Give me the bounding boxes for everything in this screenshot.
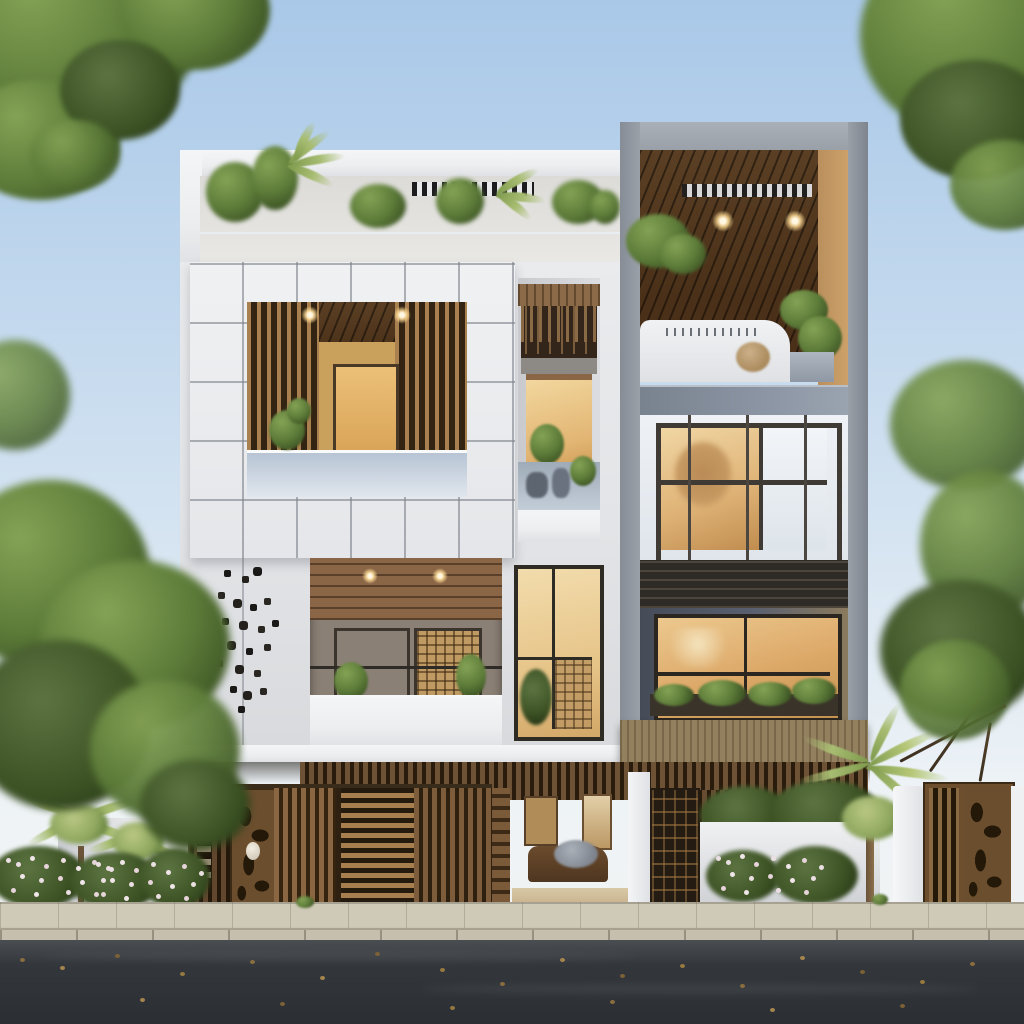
trailing-plants (654, 684, 694, 706)
flower-bush (140, 848, 210, 908)
sidewalk-edge (0, 902, 1024, 904)
gate-slat-leaf (929, 788, 959, 902)
parapet-plant (456, 654, 486, 698)
roof-shrub (436, 178, 484, 224)
window-rail (661, 480, 827, 485)
tower-terrace (640, 300, 848, 385)
ladder-detail-jamb (492, 788, 510, 906)
sidewalk-weed (872, 894, 888, 905)
sidewalk (0, 902, 1024, 928)
gate-medallion (246, 842, 260, 860)
tiled-feature-box (190, 262, 515, 558)
gate-carved-leaf (963, 786, 1009, 906)
flowers (96, 862, 101, 867)
window-plant (520, 669, 552, 725)
mullion (688, 415, 691, 560)
frame-left (620, 122, 640, 762)
floor-band (640, 385, 848, 417)
road (0, 940, 1024, 1024)
middle-bay-lower-window (514, 565, 604, 741)
mullion (804, 415, 807, 560)
lower-floor-wall (640, 608, 848, 720)
gate-vertical-slats (274, 788, 336, 908)
balcony-tree (287, 398, 311, 424)
inner-railing-slats (682, 184, 812, 197)
veranda-opening (310, 558, 502, 745)
flowers (6, 858, 11, 863)
recessed-light (784, 210, 806, 232)
curtain-wall (640, 415, 848, 560)
middle-bay-upper (518, 278, 600, 542)
sidewalk-weed (296, 896, 314, 908)
downlight (362, 568, 378, 584)
furniture-drape (554, 840, 598, 868)
roof-terrace (200, 176, 620, 262)
rendered-scene (0, 0, 1024, 1024)
wood-fascia-band (518, 284, 600, 306)
dark-lattice-gate (650, 788, 700, 906)
balcony-parapet (518, 510, 600, 542)
right-tower-block (620, 122, 868, 762)
white-pillar (628, 772, 650, 908)
entrance-lobby (512, 788, 630, 906)
butterfly-wall-art (224, 570, 231, 577)
recessed-light (712, 210, 734, 232)
tree-reflection (675, 442, 731, 506)
spotlight (301, 306, 319, 324)
lower-fascia (180, 745, 620, 762)
trailing-plants (792, 678, 836, 704)
wood-slat-screen-right (395, 302, 467, 452)
road-sheen (420, 984, 980, 994)
monstera-plant (660, 234, 706, 274)
recess-wall (521, 358, 597, 374)
white-pillar (1011, 786, 1024, 908)
roof-fascia-left-column (180, 150, 202, 266)
trailing-plants (748, 682, 792, 706)
road-sheen (40, 950, 640, 960)
gate-horizontal-louvers (336, 788, 424, 908)
dried-grass-plant (736, 342, 770, 372)
rock-glass-planter (518, 462, 600, 510)
hanging-slat-screen (521, 306, 597, 358)
carved-wood-gate (923, 782, 1015, 912)
roof-shrub (590, 190, 620, 224)
frame-top (620, 122, 868, 150)
window-rail (658, 672, 830, 676)
terrace-planter-box (790, 352, 834, 382)
fallen-leaves (20, 958, 25, 962)
dark-louver-band (640, 560, 848, 608)
balcony-plant (530, 424, 564, 464)
left-building-block (180, 150, 620, 762)
veranda-parapet (310, 695, 502, 747)
lobby-art-panel (524, 796, 558, 846)
sky-reflection-pane (761, 428, 827, 550)
frame-right (848, 122, 868, 762)
flowers (716, 856, 721, 861)
roof-shrub (350, 184, 406, 228)
window-lattice-panel (555, 660, 592, 729)
veranda-timber-ceiling (310, 558, 502, 620)
mullion (746, 415, 749, 560)
wall-joint (242, 558, 244, 748)
box-opening (247, 302, 467, 494)
spotlight (393, 306, 411, 324)
tower-bottom-wood-band (620, 720, 868, 762)
white-pillar (893, 786, 923, 908)
gate-vertical-slats (414, 788, 492, 908)
box-interior-door (333, 364, 399, 458)
balcony-glass-rail (247, 450, 467, 497)
downlight (432, 568, 448, 584)
terrace-vent-ticks (666, 328, 758, 336)
roof-glass-planter-band (200, 232, 620, 264)
trailing-plants (698, 680, 746, 706)
inner-window-frame (656, 423, 842, 565)
flower-bush (772, 846, 858, 904)
